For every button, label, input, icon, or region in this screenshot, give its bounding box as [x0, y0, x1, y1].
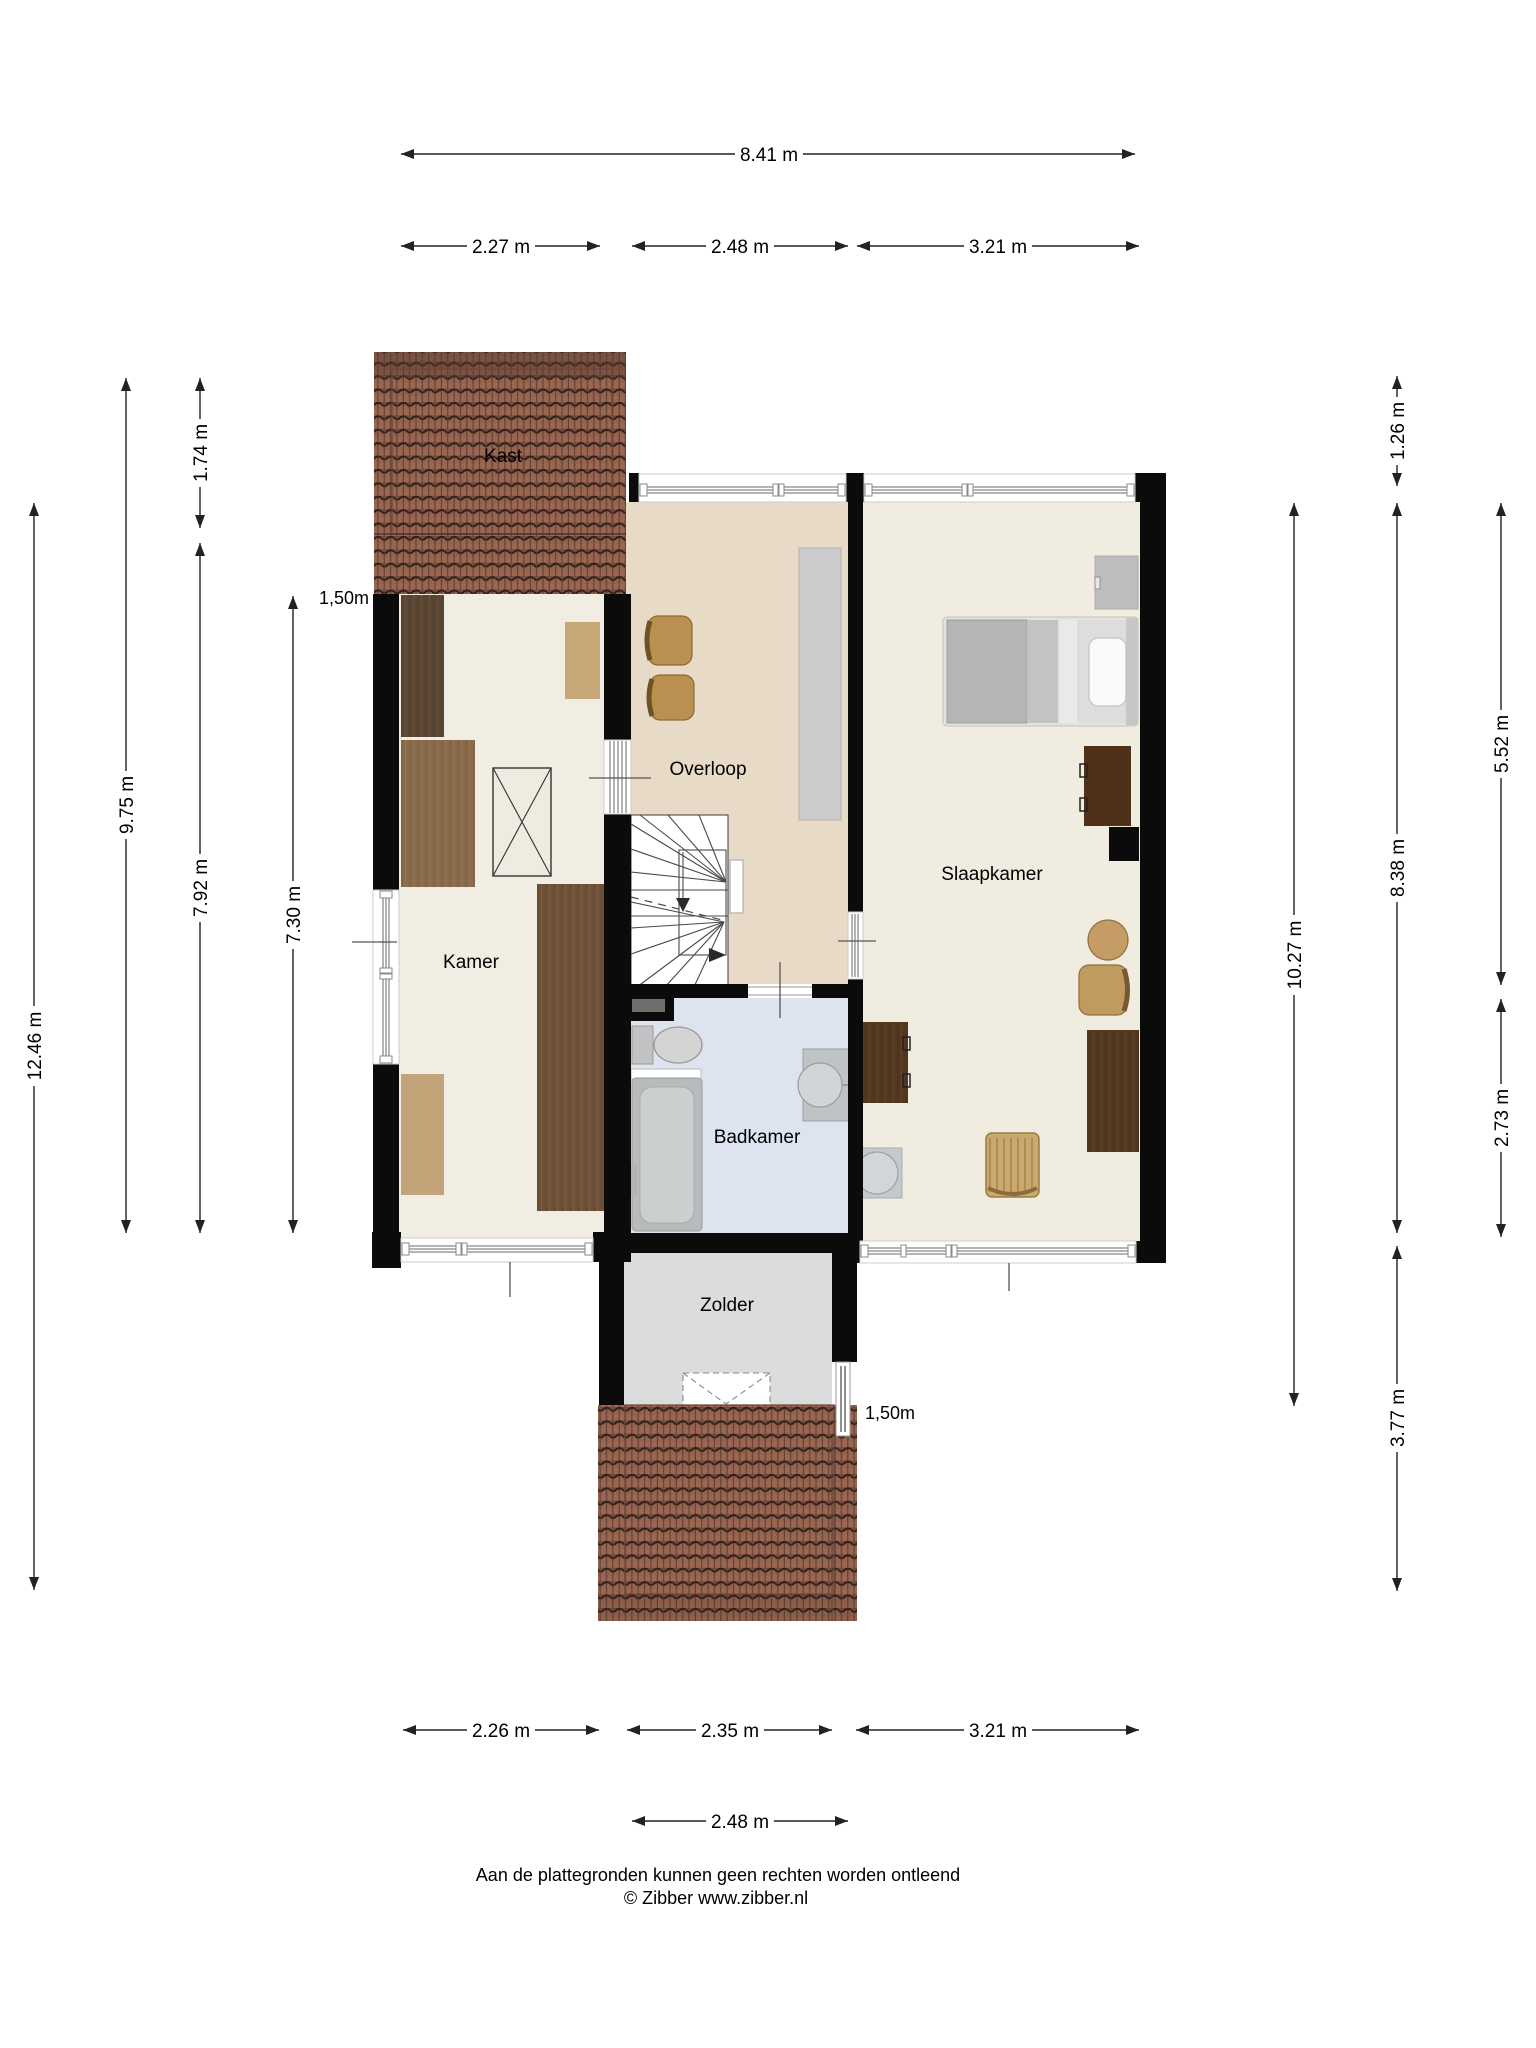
svg-text:3.21 m: 3.21 m — [969, 1721, 1027, 1742]
svg-text:Kamer: Kamer — [443, 952, 500, 973]
svg-text:2.73 m: 2.73 m — [1492, 1089, 1513, 1147]
svg-text:© Zibber www.zibber.nl: © Zibber www.zibber.nl — [624, 1888, 808, 1908]
svg-text:2.27 m: 2.27 m — [472, 237, 530, 258]
svg-text:10.27 m: 10.27 m — [1285, 921, 1306, 990]
svg-text:Overloop: Overloop — [669, 759, 746, 780]
svg-text:2.48 m: 2.48 m — [711, 1812, 769, 1833]
svg-text:5.52 m: 5.52 m — [1492, 715, 1513, 773]
svg-text:7.92 m: 7.92 m — [191, 859, 212, 917]
svg-text:2.48 m: 2.48 m — [711, 237, 769, 258]
svg-text:7.30 m: 7.30 m — [284, 886, 305, 944]
svg-text:1.26 m: 1.26 m — [1388, 402, 1409, 460]
svg-text:Kast: Kast — [484, 446, 523, 467]
svg-text:3.21 m: 3.21 m — [969, 237, 1027, 258]
svg-text:2.35 m: 2.35 m — [701, 1721, 759, 1742]
svg-text:Zolder: Zolder — [700, 1295, 755, 1316]
svg-text:12.46 m: 12.46 m — [25, 1012, 46, 1081]
svg-text:8.38 m: 8.38 m — [1388, 839, 1409, 897]
svg-text:Aan de plattegronden kunnen ge: Aan de plattegronden kunnen geen rechten… — [476, 1865, 960, 1885]
svg-text:1,50m: 1,50m — [319, 588, 369, 608]
svg-text:8.41 m: 8.41 m — [740, 145, 798, 166]
svg-text:1,50m: 1,50m — [865, 1403, 915, 1423]
svg-text:3.77 m: 3.77 m — [1388, 1389, 1409, 1447]
svg-text:1.74 m: 1.74 m — [191, 424, 212, 482]
svg-text:Badkamer: Badkamer — [714, 1127, 801, 1148]
svg-text:9.75 m: 9.75 m — [117, 776, 138, 834]
svg-text:Slaapkamer: Slaapkamer — [941, 864, 1043, 885]
svg-text:2.26 m: 2.26 m — [472, 1721, 530, 1742]
